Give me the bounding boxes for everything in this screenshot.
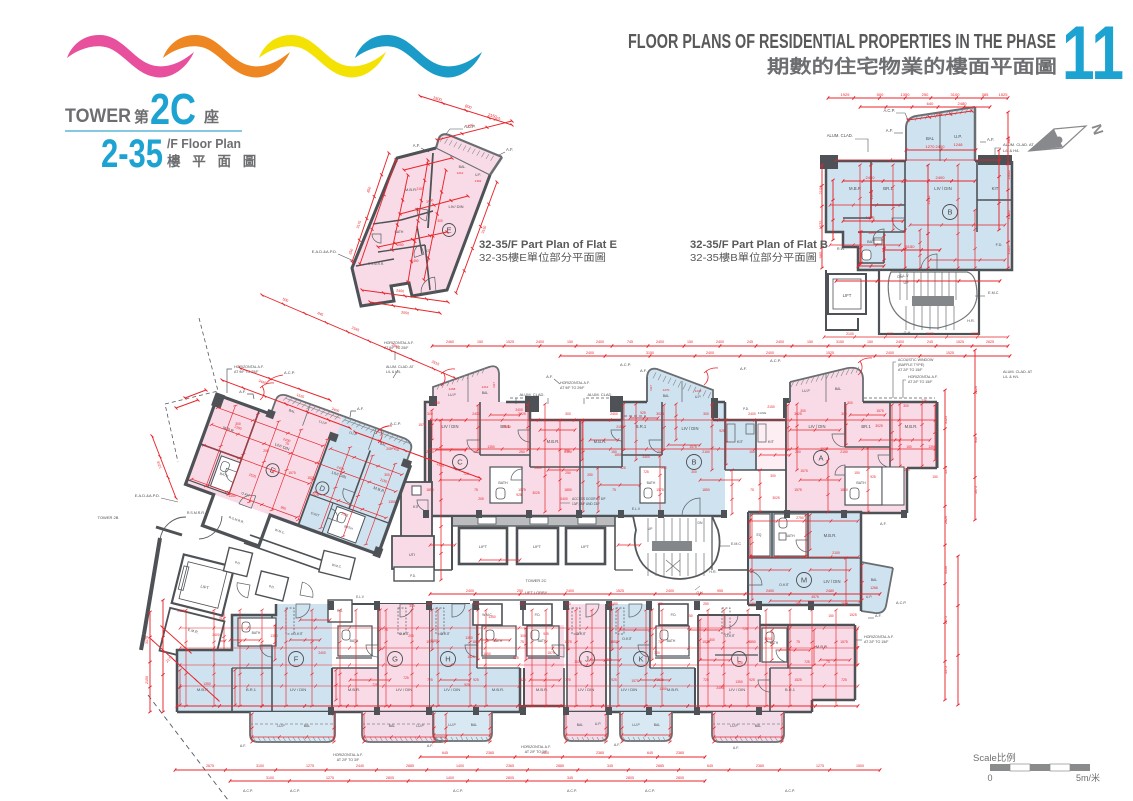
svg-text:Scale比例: Scale比例 (973, 752, 1016, 764)
svg-text:250: 250 (565, 471, 571, 475)
svg-text:B.R.1: B.R.1 (246, 687, 257, 692)
svg-text:E.M.C: E.M.C (731, 542, 741, 546)
svg-text:BAL: BAL (459, 165, 466, 169)
svg-text:2750: 2750 (796, 516, 804, 520)
svg-text:O.KIT: O.KIT (779, 583, 790, 587)
svg-text:TOWER 2C: TOWER 2C (525, 578, 546, 583)
svg-text:2150: 2150 (748, 602, 756, 606)
svg-text:1525: 1525 (616, 589, 624, 593)
svg-text:H.R.: H.R. (967, 319, 975, 323)
svg-text:AT 2/F TO 3/F: AT 2/F TO 3/F (337, 758, 360, 762)
svg-text:A.F.: A.F. (740, 366, 747, 371)
svg-text:300: 300 (770, 474, 776, 478)
svg-text:2400: 2400 (666, 589, 674, 593)
svg-text:925: 925 (611, 678, 617, 682)
svg-text:1575: 1575 (944, 466, 948, 474)
svg-text:BATH: BATH (498, 481, 508, 485)
svg-text:ACOUSTIC WINDOW: ACOUSTIC WINDOW (898, 358, 934, 362)
svg-text:2400: 2400 (936, 175, 946, 180)
svg-text:ALUM. CLAD.: ALUM. CLAD. (587, 392, 612, 397)
svg-text:75: 75 (485, 639, 489, 643)
svg-text:2820: 2820 (944, 516, 948, 524)
svg-text:座: 座 (203, 108, 219, 126)
svg-text:1925: 1925 (841, 92, 851, 97)
svg-text:A.F.: A.F. (880, 522, 887, 526)
svg-text:725: 725 (643, 470, 649, 474)
svg-text:2885: 2885 (406, 764, 414, 768)
svg-text:UP: UP (904, 281, 910, 285)
svg-text:M.B.R.: M.B.R. (197, 687, 209, 692)
svg-text:3125: 3125 (944, 416, 948, 424)
svg-text:300: 300 (847, 401, 853, 405)
svg-text:BATH: BATH (785, 534, 795, 538)
svg-text:32-35/F Part Plan of Flat E: 32-35/F Part Plan of Flat E (479, 239, 617, 251)
svg-text:1850: 1850 (503, 425, 511, 429)
svg-text:M.B.R.: M.B.R. (405, 187, 417, 192)
svg-text:1575: 1575 (876, 409, 884, 413)
svg-text:725: 725 (804, 660, 810, 664)
svg-text:1350: 1350 (270, 634, 278, 638)
svg-text:/F Floor Plan: /F Floor Plan (167, 137, 241, 151)
svg-text:300: 300 (437, 219, 443, 223)
svg-text:645: 645 (647, 751, 653, 755)
svg-text:M: M (801, 576, 807, 585)
svg-text:AT 9/F TO 29/F: AT 9/F TO 29/F (560, 386, 585, 390)
svg-text:1675: 1675 (974, 486, 978, 494)
svg-text:1575: 1575 (794, 488, 802, 492)
svg-text:F: F (294, 655, 299, 664)
svg-text:AT 2/F TO 15/F: AT 2/F TO 15/F (908, 380, 933, 384)
svg-text:1850: 1850 (840, 488, 848, 492)
svg-text:150: 150 (687, 614, 693, 618)
svg-text:A.C.P.: A.C.P. (770, 358, 781, 363)
svg-text:4575: 4575 (811, 595, 819, 599)
svg-text:725: 725 (565, 678, 571, 682)
svg-text:925: 925 (749, 678, 755, 682)
svg-text:U.P.: U.P. (866, 595, 872, 599)
svg-text:3025: 3025 (820, 447, 828, 451)
svg-text:HORIZONTAL A.F.: HORIZONTAL A.F. (560, 381, 590, 385)
svg-text:LIV / DIN: LIV / DIN (809, 424, 826, 429)
svg-text:345: 345 (607, 764, 613, 768)
svg-text:1575: 1575 (689, 445, 697, 449)
svg-text:880: 880 (1006, 136, 1011, 143)
svg-text:925: 925 (620, 466, 626, 470)
svg-text:K: K (638, 655, 643, 664)
svg-text:32-35樓B單位部分平面圖: 32-35樓B單位部分平面圖 (690, 251, 817, 264)
svg-text:32-35樓E單位部分平面圖: 32-35樓E單位部分平面圖 (479, 251, 606, 264)
svg-text:725: 725 (427, 678, 433, 682)
svg-text:1350: 1350 (228, 494, 236, 498)
svg-text:2400: 2400 (936, 144, 946, 149)
svg-text:BAL: BAL (663, 394, 670, 398)
svg-text:E.M.C: E.M.C (988, 291, 999, 295)
svg-text:925: 925 (737, 661, 743, 665)
svg-text:P.D.: P.D. (671, 613, 677, 617)
svg-text:H: H (445, 655, 450, 664)
svg-text:ALUM. CLAD. AT: ALUM. CLAD. AT (1003, 370, 1033, 374)
svg-text:725: 725 (921, 399, 927, 403)
svg-text:ACCESS DOOR AT 8/F: ACCESS DOOR AT 8/F (572, 497, 606, 501)
svg-text:A.C.P.: A.C.P. (284, 370, 295, 375)
svg-text:250: 250 (661, 466, 667, 470)
svg-text:1525: 1525 (307, 476, 315, 480)
svg-text:300: 300 (565, 412, 571, 416)
svg-text:1350: 1350 (659, 687, 667, 691)
svg-text:2675: 2675 (944, 616, 948, 624)
svg-text:BAL: BAL (304, 724, 311, 728)
svg-text:HORIZONTAL A.F.: HORIZONTAL A.F. (908, 375, 938, 379)
svg-text:2885: 2885 (556, 764, 564, 768)
svg-text:2400: 2400 (596, 340, 604, 344)
svg-text:3175: 3175 (145, 636, 149, 644)
svg-text:A.C.P.: A.C.P. (896, 601, 906, 605)
svg-text:2480: 2480 (958, 101, 968, 106)
svg-text:M.B.R.: M.B.R. (905, 424, 918, 429)
svg-text:1500: 1500 (856, 764, 864, 768)
svg-text:M.B.R: M.B.R (849, 186, 861, 191)
svg-text:2400: 2400 (536, 340, 544, 344)
svg-text:2365: 2365 (756, 764, 764, 768)
svg-text:1362: 1362 (475, 179, 482, 183)
svg-text:2400: 2400 (515, 408, 523, 412)
svg-text:F.LINE: F.LINE (758, 411, 767, 415)
svg-text:725: 725 (403, 676, 409, 680)
svg-text:HORIZONTAL A.F.: HORIZONTAL A.F. (333, 753, 363, 757)
svg-text:E: E (446, 226, 451, 235)
svg-text:AT 2/F TO 15/F: AT 2/F TO 15/F (864, 640, 889, 644)
svg-text:M.B.R.: M.B.R. (667, 687, 679, 692)
svg-text:1575: 1575 (631, 679, 639, 683)
svg-text:BATH: BATH (667, 639, 676, 643)
svg-text:2150: 2150 (426, 450, 434, 454)
svg-text:150: 150 (567, 340, 573, 344)
svg-text:2400: 2400 (716, 340, 724, 344)
svg-text:H.R.: H.R. (709, 570, 716, 574)
svg-text:E.A.D.&A.P.D.: E.A.D.&A.P.D. (135, 493, 160, 498)
svg-text:M.B.R.: M.B.R. (492, 687, 504, 692)
svg-text:O.KIT: O.KIT (622, 637, 633, 641)
svg-text:1850: 1850 (748, 640, 756, 644)
svg-text:A.F.: A.F. (427, 744, 433, 748)
svg-text:期數的住宅物業的樓面平面圖: 期數的住宅物業的樓面平面圖 (767, 56, 1057, 77)
svg-text:LIV / DIN: LIV / DIN (729, 687, 745, 692)
svg-text:LIFT: LIFT (843, 293, 852, 298)
svg-text:AT 2/F TO 3/F: AT 2/F TO 3/F (525, 750, 548, 754)
svg-text:2100: 2100 (832, 551, 840, 555)
svg-text:2400: 2400 (706, 351, 714, 355)
svg-text:2365: 2365 (596, 751, 604, 755)
svg-text:75: 75 (796, 640, 800, 644)
svg-text:150: 150 (519, 602, 525, 606)
svg-text:U.P.: U.P. (695, 395, 702, 399)
svg-text:BATH: BATH (856, 481, 866, 485)
svg-text:150: 150 (473, 450, 479, 454)
svg-text:2175: 2175 (926, 195, 931, 205)
svg-text:1850: 1850 (702, 488, 710, 492)
svg-text:1575: 1575 (518, 488, 526, 492)
svg-text:LIFT: LIFT (533, 544, 542, 549)
svg-text:1570: 1570 (869, 190, 874, 200)
svg-text:725: 725 (742, 627, 748, 631)
svg-text:1275: 1275 (816, 764, 824, 768)
svg-text:LIV / DIN: LIV / DIN (396, 687, 412, 692)
svg-text:P.D.: P.D. (410, 574, 416, 578)
svg-text:725: 725 (703, 678, 709, 682)
svg-text:640: 640 (927, 101, 934, 106)
svg-text:1350: 1350 (388, 500, 396, 504)
svg-text:150: 150 (657, 602, 663, 606)
svg-text:300: 300 (427, 412, 433, 416)
svg-text:1525: 1525 (1006, 245, 1011, 255)
svg-text:1350: 1350 (901, 92, 911, 97)
svg-text:2150: 2150 (145, 676, 149, 684)
svg-text:1595: 1595 (868, 231, 876, 235)
svg-text:1117: 1117 (492, 382, 496, 388)
svg-text:A.F.: A.F. (357, 406, 364, 411)
svg-text:LU.P: LU.P (448, 393, 456, 397)
svg-text:1350: 1350 (928, 445, 936, 449)
svg-text:965: 965 (818, 251, 823, 258)
svg-text:725: 725 (463, 472, 469, 476)
svg-text:A.C.P.: A.C.P. (453, 789, 463, 793)
svg-text:645: 645 (707, 764, 713, 768)
svg-text:75: 75 (658, 640, 662, 644)
svg-text:KIT: KIT (992, 186, 999, 191)
svg-text:300: 300 (903, 404, 909, 408)
svg-text:2365: 2365 (486, 751, 494, 755)
svg-text:250: 250 (608, 603, 614, 607)
svg-text:0: 0 (987, 773, 992, 783)
svg-text:925: 925 (473, 678, 479, 682)
svg-text:BAL: BAL (389, 724, 396, 728)
svg-text:3100: 3100 (256, 764, 264, 768)
svg-text:250: 250 (904, 468, 910, 472)
svg-text:LIV / DIN: LIV / DIN (290, 687, 306, 692)
svg-text:3100: 3100 (266, 776, 274, 780)
svg-text:150: 150 (477, 340, 483, 344)
svg-text:2440: 2440 (356, 764, 364, 768)
svg-text:LIV / DIN: LIV / DIN (682, 426, 699, 431)
svg-text:R.W.: R.W. (837, 247, 845, 251)
svg-text:75: 75 (384, 628, 388, 632)
svg-text:C.L.V: C.L.V (900, 274, 910, 278)
svg-text:1350: 1350 (488, 615, 496, 619)
svg-text:2365: 2365 (676, 751, 684, 755)
svg-text:250: 250 (922, 92, 929, 97)
svg-text:250: 250 (703, 602, 709, 606)
svg-text:2100: 2100 (818, 185, 823, 195)
svg-text:250: 250 (427, 602, 433, 606)
svg-text:LIV / DIN: LIV / DIN (824, 579, 841, 584)
svg-text:345: 345 (567, 776, 573, 780)
svg-text:205: 205 (408, 634, 414, 638)
svg-text:A.F.: A.F. (240, 744, 246, 748)
svg-text:HORIZONTAL A.F.: HORIZONTAL A.F. (864, 635, 894, 639)
svg-text:2150: 2150 (430, 639, 438, 643)
svg-text:150: 150 (795, 602, 801, 606)
svg-text:A.F.: A.F. (413, 143, 420, 148)
svg-text:1575: 1575 (800, 469, 808, 473)
svg-text:LIFT: LIFT (479, 544, 488, 549)
svg-text:2460: 2460 (446, 340, 454, 344)
svg-text:1266: 1266 (870, 586, 878, 590)
svg-text:(BAFFLE TYPE): (BAFFLE TYPE) (898, 363, 924, 367)
svg-text:2150: 2150 (472, 602, 480, 606)
svg-text:3150: 3150 (646, 351, 654, 355)
svg-text:150: 150 (807, 340, 813, 344)
svg-text:250: 250 (657, 450, 663, 454)
svg-text:1525: 1525 (946, 351, 954, 355)
svg-text:1850: 1850 (472, 640, 480, 644)
svg-text:2C: 2C (150, 85, 196, 134)
svg-text:2805: 2805 (676, 776, 684, 780)
svg-text:A.F.: A.F. (506, 147, 513, 152)
svg-text:2150: 2150 (616, 425, 624, 429)
svg-text:2-35: 2-35 (101, 132, 163, 176)
svg-text:250: 250 (565, 602, 571, 606)
svg-text:205: 205 (478, 497, 484, 501)
svg-text:M.B.R.: M.B.R. (824, 533, 837, 538)
svg-text:1850: 1850 (483, 652, 491, 656)
svg-text:1875: 1875 (866, 215, 876, 220)
svg-text:1117: 1117 (649, 385, 653, 391)
svg-text:R.S.M.R.R.: R.S.M.R.R. (187, 511, 205, 515)
svg-text:1525: 1525 (956, 340, 964, 344)
svg-text:LU.P: LU.P (277, 724, 285, 728)
svg-text:1575: 1575 (656, 488, 664, 492)
svg-text:B: B (691, 458, 696, 467)
svg-text:1850: 1850 (764, 637, 772, 641)
svg-text:O.KIT: O.KIT (725, 634, 736, 638)
svg-text:LU.P: LU.P (802, 389, 810, 393)
svg-text:300: 300 (409, 604, 415, 608)
svg-text:LIV / DIN: LIV / DIN (621, 687, 637, 692)
svg-text:1850: 1850 (614, 453, 622, 457)
svg-text:2675: 2675 (206, 764, 214, 768)
svg-text:645: 645 (442, 751, 448, 755)
svg-text:1575: 1575 (564, 640, 572, 644)
svg-text:3150: 3150 (836, 340, 844, 344)
svg-text:2400: 2400 (212, 633, 220, 637)
svg-text:75: 75 (520, 640, 524, 644)
svg-text:3150: 3150 (944, 566, 948, 574)
svg-text:BR.1: BR.1 (883, 186, 893, 191)
svg-text:BAL: BAL (926, 136, 935, 141)
svg-text:925: 925 (719, 429, 725, 433)
svg-text:300: 300 (384, 473, 390, 477)
svg-text:925: 925 (543, 632, 549, 636)
svg-text:B: B (947, 208, 952, 217)
svg-text:2150: 2150 (177, 609, 185, 613)
svg-text:1575: 1575 (288, 471, 296, 475)
svg-text:385: 385 (982, 92, 989, 97)
svg-text:300: 300 (703, 412, 709, 416)
svg-text:725: 725 (841, 678, 847, 682)
svg-text:LIV / DIN: LIV / DIN (934, 186, 951, 191)
svg-text:B.R.1: B.R.1 (785, 687, 796, 692)
svg-text:HORIZONTAL A.F.: HORIZONTAL A.F. (521, 745, 551, 749)
svg-text:250: 250 (564, 449, 570, 453)
svg-text:TOWER 2B: TOWER 2B (98, 515, 119, 520)
svg-text:E.L.V: E.L.V (356, 595, 365, 599)
svg-text:925: 925 (640, 411, 646, 415)
svg-text:2400: 2400 (656, 340, 664, 344)
svg-text:2400: 2400 (534, 466, 542, 470)
svg-text:11: 11 (1062, 11, 1124, 96)
svg-text:1050: 1050 (396, 243, 403, 247)
svg-text:1525: 1525 (656, 678, 664, 682)
svg-text:5m/米: 5m/米 (1076, 772, 1100, 783)
svg-text:A.F.: A.F. (546, 374, 553, 379)
svg-text:263: 263 (887, 332, 893, 336)
svg-text:725: 725 (372, 683, 378, 687)
svg-text:2150: 2150 (767, 405, 775, 409)
svg-text:250: 250 (517, 589, 523, 593)
svg-text:13/F,18/F AND 23/F: 13/F,18/F AND 23/F (572, 502, 600, 506)
svg-text:2400: 2400 (566, 589, 574, 593)
svg-text:955: 955 (717, 589, 723, 593)
svg-text:1350: 1350 (465, 636, 473, 640)
svg-text:2400: 2400 (472, 412, 480, 416)
svg-text:BAL: BAL (482, 391, 489, 395)
svg-text:EQ: EQ (757, 533, 762, 537)
svg-text:A.C.P.: A.C.P. (785, 789, 795, 793)
svg-text:205: 205 (606, 658, 612, 662)
svg-text:1400: 1400 (446, 776, 454, 780)
svg-text:1525: 1525 (794, 678, 802, 682)
svg-text:J: J (585, 655, 589, 664)
svg-text:1270: 1270 (926, 144, 936, 149)
svg-text:A.C.P.: A.C.P. (390, 421, 401, 426)
svg-text:2400: 2400 (766, 589, 774, 593)
svg-text:BATH: BATH (252, 631, 261, 635)
svg-text:150: 150 (932, 475, 938, 479)
svg-text:BAL: BAL (471, 723, 478, 727)
svg-text:75: 75 (474, 488, 478, 492)
svg-text:L/L & H/L: L/L & H/L (386, 370, 401, 374)
svg-text:2400: 2400 (748, 412, 756, 416)
svg-text:2400: 2400 (318, 651, 326, 655)
svg-text:BAL: BAL (755, 724, 762, 728)
svg-text:2480: 2480 (826, 589, 834, 593)
svg-text:A.F.: A.F. (640, 368, 647, 373)
svg-text:A.F.: A.F. (733, 746, 739, 750)
svg-text:2100: 2100 (846, 332, 854, 336)
svg-text:940: 940 (974, 437, 978, 443)
svg-text:2625: 2625 (986, 340, 994, 344)
svg-text:G.H: G.H (904, 331, 911, 335)
svg-text:ALUM. CLAD. AT: ALUM. CLAD. AT (386, 365, 414, 369)
svg-text:L/L & H/L: L/L & H/L (1003, 375, 1019, 379)
svg-text:150: 150 (854, 471, 860, 475)
svg-text:第: 第 (134, 108, 149, 126)
svg-text:2400: 2400 (886, 351, 894, 355)
svg-text:1248: 1248 (954, 142, 964, 147)
svg-text:2805: 2805 (506, 776, 514, 780)
svg-text:A.F.: A.F. (875, 614, 882, 618)
svg-text:75: 75 (750, 488, 754, 492)
svg-text:A.C.P.: A.C.P. (567, 789, 577, 793)
svg-text:1350: 1350 (487, 445, 495, 449)
svg-text:925: 925 (513, 656, 519, 660)
svg-text:1575: 1575 (418, 423, 426, 427)
svg-text:2150: 2150 (416, 187, 423, 191)
svg-text:250: 250 (795, 450, 801, 454)
svg-text:300: 300 (434, 401, 440, 405)
svg-text:2400: 2400 (586, 351, 594, 355)
svg-text:E.A.D.&A.P.D.: E.A.D.&A.P.D. (312, 249, 337, 254)
